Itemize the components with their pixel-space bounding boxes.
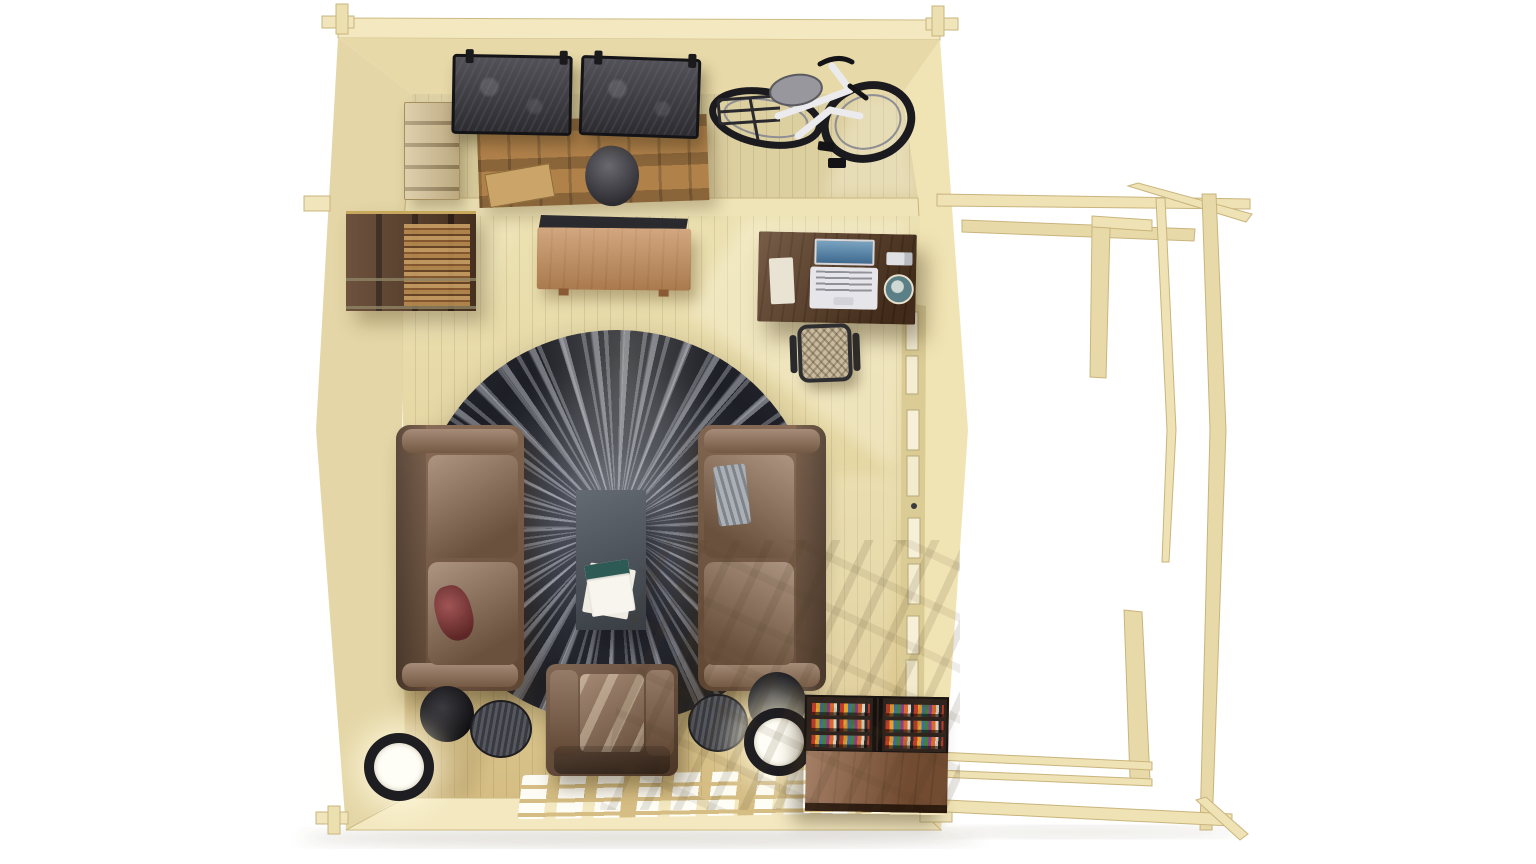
sofa-armrest — [402, 429, 518, 453]
sofa-cushion — [704, 562, 794, 665]
bin-hook — [688, 54, 696, 68]
canvas-bin — [451, 54, 572, 136]
armchair-armrest — [646, 670, 674, 756]
laptop-touchpad — [833, 297, 853, 305]
cabin-top-view-render — [0, 0, 1536, 864]
office-chair — [789, 319, 861, 387]
laptop-keyboard — [809, 266, 878, 309]
pergola-base-beam — [946, 800, 1232, 826]
book-row — [885, 736, 943, 749]
pergola-bottom-rail-1 — [937, 752, 1152, 770]
shelf-rail — [346, 306, 476, 309]
canvas-bin-rack — [451, 54, 704, 140]
striped-side-table — [688, 694, 748, 752]
pergola-frame — [937, 183, 1252, 840]
pergola-bottom-rail-2 — [937, 770, 1152, 786]
bin-hook — [560, 51, 568, 65]
desk-plant — [883, 274, 914, 305]
bin-hook — [466, 49, 474, 63]
armchair-armrest — [550, 670, 578, 756]
bike-wall-mount — [828, 158, 846, 168]
sofa-armrest — [704, 429, 820, 453]
laptop-screen — [814, 239, 875, 266]
bike-front-wheel — [815, 74, 921, 170]
striped-side-table — [470, 700, 532, 758]
book-row — [885, 720, 943, 733]
bicycle — [700, 50, 962, 182]
pallet-loose-board — [484, 163, 555, 208]
cabinet-top — [805, 751, 948, 813]
book-cabinet — [803, 695, 949, 815]
canvas-bin — [579, 55, 702, 139]
rack-rail — [872, 698, 877, 755]
door-handle — [911, 503, 917, 509]
book-row — [886, 704, 944, 717]
pergola-inner-post-lower — [1124, 610, 1150, 780]
pergola-ground-shadow — [940, 826, 1240, 838]
pergola-inner-post-upper — [1090, 227, 1110, 378]
armchair-seat — [580, 674, 644, 752]
sofa-cushion — [428, 455, 518, 558]
shelf-rail — [346, 278, 476, 281]
phone — [886, 252, 912, 266]
sideboard-foot — [659, 289, 669, 296]
armchair — [546, 664, 678, 776]
sofa-right — [698, 425, 826, 691]
sofa-backrest — [396, 425, 426, 691]
book-row — [812, 703, 870, 716]
desk — [757, 231, 917, 324]
chair-armrest — [852, 333, 860, 371]
sideboard — [537, 227, 692, 291]
shelf-books — [404, 224, 470, 306]
floor-lamp — [364, 733, 434, 801]
pergola-right-post — [1200, 194, 1226, 830]
sideboard-foot — [559, 288, 569, 295]
rack-rail — [878, 698, 883, 755]
pergola-inner-edge — [1156, 198, 1176, 562]
sofa-left — [396, 425, 524, 691]
gray-blanket — [713, 463, 751, 526]
magazine — [584, 559, 636, 617]
chair-armrest — [789, 335, 797, 373]
armchair-backrest — [554, 746, 670, 774]
building-ground-shadow — [300, 829, 980, 847]
black-side-table — [420, 686, 474, 742]
sofa-armrest — [402, 663, 518, 687]
coffee-table — [576, 490, 646, 630]
chair-mesh-seat — [797, 323, 853, 383]
book-row — [811, 719, 869, 732]
bin-hook — [594, 50, 602, 64]
book-rack — [804, 695, 949, 755]
wall-shelf — [346, 211, 476, 311]
north-wall-top — [338, 18, 940, 40]
notepad — [769, 257, 795, 304]
book-row — [811, 735, 869, 748]
sofa-backrest — [796, 425, 826, 691]
